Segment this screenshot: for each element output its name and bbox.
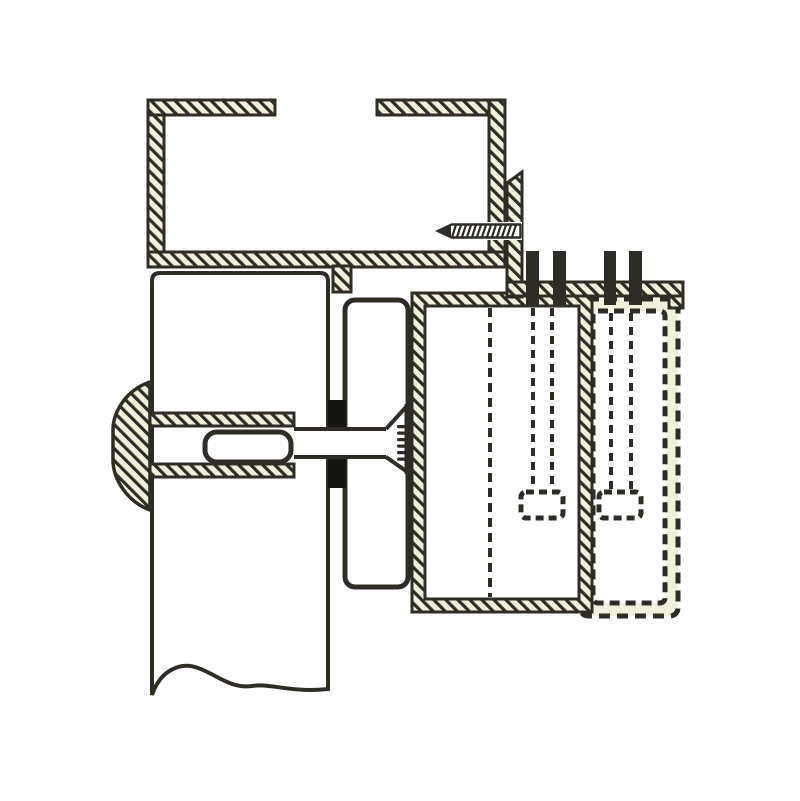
bracket-end-lip [669, 296, 683, 308]
profile-bottom-wall [148, 252, 505, 267]
page [0, 0, 800, 801]
anchor-sleeve-slot [205, 432, 291, 462]
bolt-2-left-edge [604, 251, 616, 305]
bolt-2-right-edge [629, 251, 642, 305]
diagram-canvas [0, 0, 800, 801]
profile-top-wall-right-segment [377, 100, 505, 115]
anchor-sleeve-bottom-wall [150, 464, 294, 477]
shaft-clearance [294, 430, 386, 456]
bolt-1-hidden-nut [521, 492, 563, 518]
profile-right-wall [489, 100, 505, 267]
anchor-sleeve-top-wall [150, 413, 294, 426]
profile-bottom-rib [333, 266, 351, 292]
anchor-dome-head [113, 382, 150, 510]
housing-solid [412, 293, 592, 612]
bolt-2-hidden-nut [599, 492, 641, 518]
top-rail-profile [148, 100, 505, 292]
profile-top-wall-left-segment [148, 100, 275, 115]
housing-phantom [580, 299, 678, 616]
panel-section-outline [152, 273, 328, 695]
bolt-1-left-edge [526, 251, 539, 305]
fixing-screw [435, 222, 522, 240]
profile-left-wall [148, 100, 164, 267]
screw-tip [435, 224, 451, 239]
bolt-1-right-edge [553, 251, 566, 305]
vertical-panel [152, 273, 328, 695]
housing-inner-cavity [425, 306, 579, 599]
